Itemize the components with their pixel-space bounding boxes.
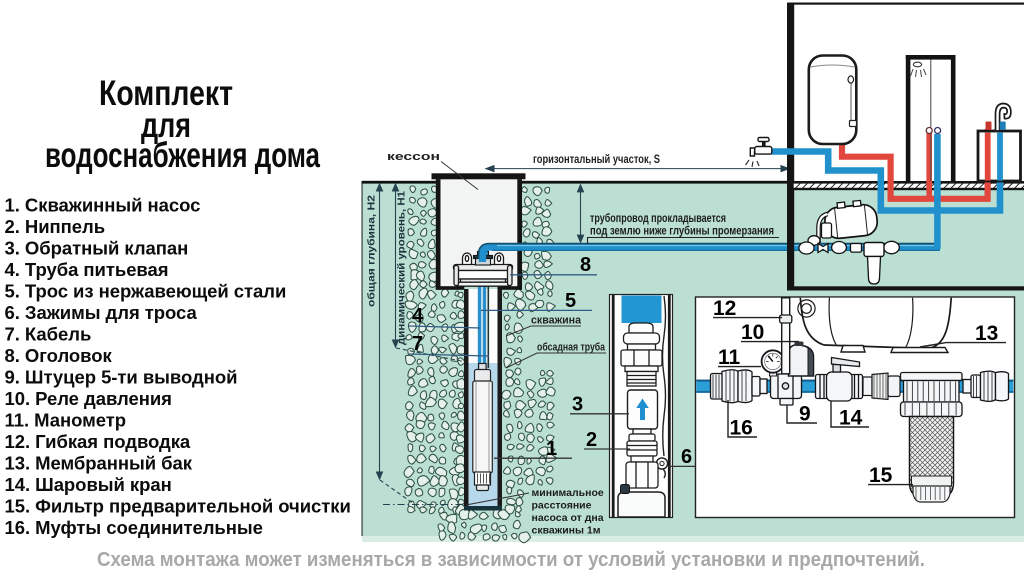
svg-text:6: 6 <box>681 446 692 468</box>
svg-text:трубопровод прокладывается: трубопровод прокладывается <box>590 213 726 225</box>
svg-text:кессон: кессон <box>387 151 440 163</box>
svg-text:8: 8 <box>580 254 591 276</box>
svg-text:1: 1 <box>546 438 557 460</box>
svg-text:12. Гибкая подводка: 12. Гибкая подводка <box>5 431 191 452</box>
svg-text:13: 13 <box>975 322 998 345</box>
svg-text:динамический уровень, Н1: динамический уровень, Н1 <box>397 191 408 345</box>
svg-text:10. Реле давления: 10. Реле давления <box>5 388 172 409</box>
svg-text:15. Фильтр предварительной очи: 15. Фильтр предварительной очистки <box>5 496 351 517</box>
svg-text:6. Зажимы для троса: 6. Зажимы для троса <box>5 302 198 323</box>
svg-text:4: 4 <box>412 305 424 327</box>
svg-text:5: 5 <box>565 290 576 312</box>
svg-text:обсадная труба: обсадная труба <box>537 342 606 354</box>
svg-text:горизонтальный участок, S: горизонтальный участок, S <box>533 154 660 166</box>
svg-text:7. Кабель: 7. Кабель <box>5 324 92 345</box>
svg-text:2. Ниппель: 2. Ниппель <box>5 216 106 237</box>
svg-text:минимальное: минимальное <box>532 487 604 499</box>
svg-text:под землю ниже глубины промерз: под землю ниже глубины промерзания <box>590 226 774 238</box>
svg-text:12: 12 <box>713 297 736 320</box>
svg-text:3. Обратный клапан: 3. Обратный клапан <box>5 238 189 259</box>
svg-text:1. Скважинный насос: 1. Скважинный насос <box>5 195 201 216</box>
svg-text:16: 16 <box>730 417 753 440</box>
svg-text:9: 9 <box>799 403 811 426</box>
svg-text:2: 2 <box>586 429 597 451</box>
svg-text:14. Шаровый кран: 14. Шаровый кран <box>5 474 172 495</box>
svg-text:11: 11 <box>718 346 741 369</box>
svg-text:5. Трос из нержавеющей стали: 5. Трос из нержавеющей стали <box>5 281 287 302</box>
svg-text:4. Труба питьевая: 4. Труба питьевая <box>5 259 169 280</box>
svg-text:скважины 1м: скважины 1м <box>532 525 601 537</box>
svg-text:расстояние: расстояние <box>532 500 592 512</box>
svg-text:общая глубина, Н2: общая глубина, Н2 <box>366 194 378 307</box>
svg-text:13. Мембранный бак: 13. Мембранный бак <box>5 453 193 474</box>
svg-text:9. Штуцер 5-ти выводной: 9. Штуцер 5-ти выводной <box>5 367 238 388</box>
svg-text:3: 3 <box>572 394 583 416</box>
svg-text:11. Манометр: 11. Манометр <box>5 410 126 431</box>
svg-text:водоснабжения дома: водоснабжения дома <box>45 136 320 175</box>
svg-text:10: 10 <box>741 321 764 344</box>
svg-text:насоса от дна: насоса от дна <box>532 512 604 524</box>
svg-text:7: 7 <box>412 333 423 355</box>
svg-text:14: 14 <box>839 407 863 430</box>
svg-text:16. Муфты соединительные: 16. Муфты соединительные <box>5 517 263 538</box>
svg-text:Схема монтажа может изменяться: Схема монтажа может изменяться в зависим… <box>97 549 925 571</box>
svg-text:15: 15 <box>869 464 893 487</box>
svg-text:8. Оголовок: 8. Оголовок <box>5 345 113 366</box>
svg-text:скважина: скважина <box>531 315 582 327</box>
